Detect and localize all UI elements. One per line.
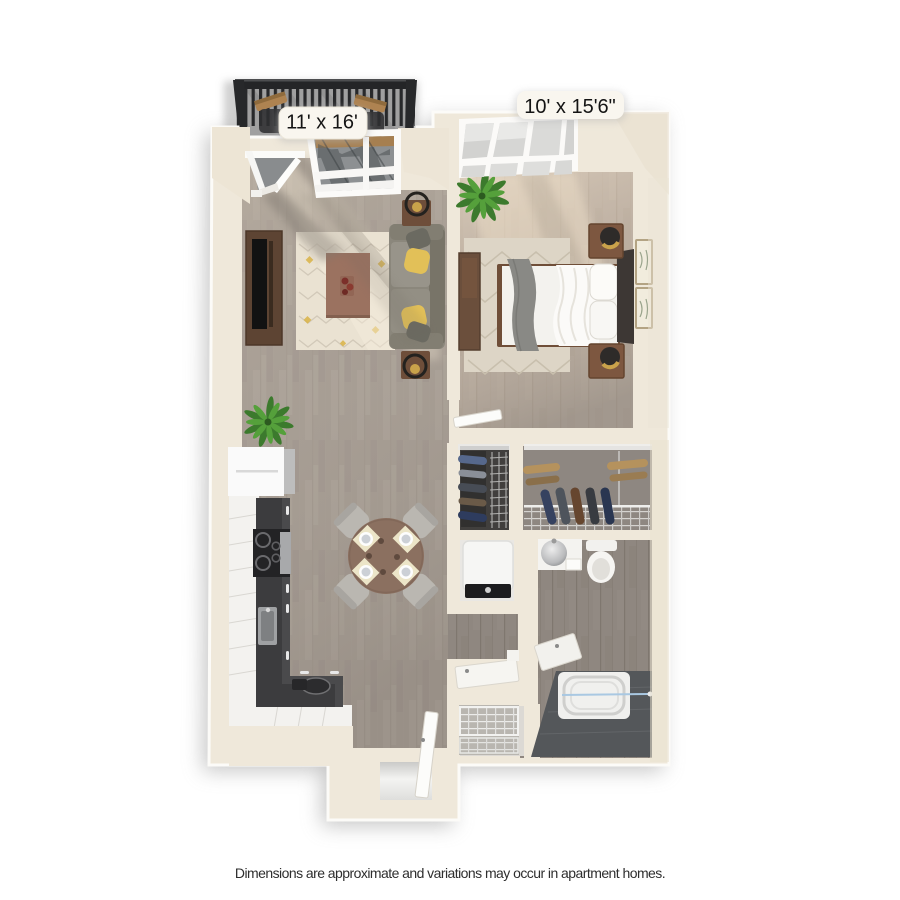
svg-text:11' x 16': 11' x 16': [286, 112, 358, 134]
svg-text:10' x 15'6": 10' x 15'6": [524, 96, 615, 118]
svg-text:Dimensions are approximate and: Dimensions are approximate and variation…: [235, 865, 665, 881]
